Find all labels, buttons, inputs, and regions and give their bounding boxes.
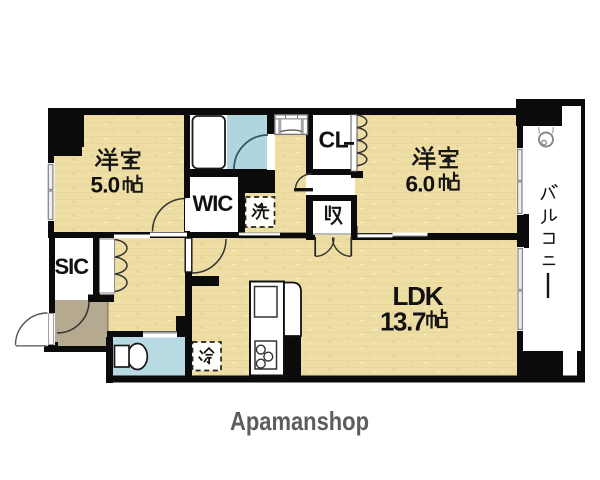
svg-text:CL: CL — [319, 127, 349, 153]
svg-text:6.0: 6.0 — [406, 172, 435, 197]
svg-text:WIC: WIC — [193, 191, 234, 216]
svg-text:13.7: 13.7 — [380, 307, 426, 337]
svg-text:5.0: 5.0 — [91, 173, 120, 198]
svg-text:SIC: SIC — [55, 254, 90, 279]
svg-text:Apamanshop: Apamanshop — [230, 406, 369, 436]
